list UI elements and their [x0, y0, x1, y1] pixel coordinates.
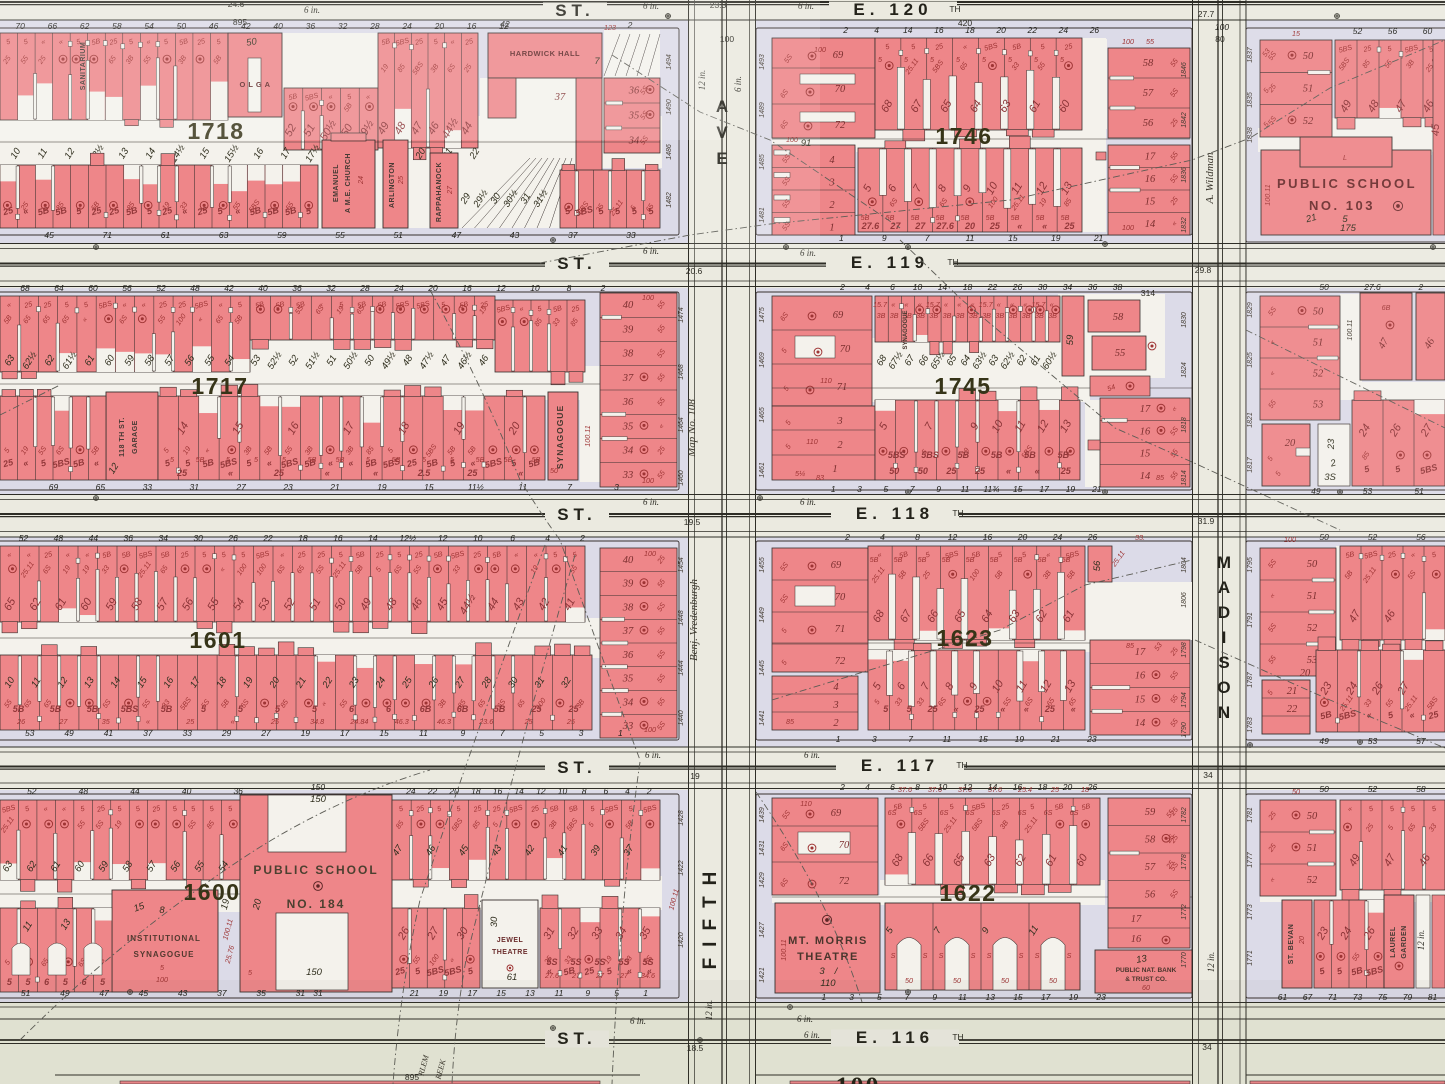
svg-text:1622: 1622	[939, 880, 996, 906]
svg-text:7: 7	[500, 728, 505, 738]
svg-text:SYNAGOGUE: SYNAGOGUE	[133, 950, 194, 959]
svg-text:«: «	[957, 300, 961, 309]
svg-text:5BS: 5BS	[888, 450, 906, 460]
svg-text:11¾: 11¾	[983, 484, 999, 494]
svg-text:1836: 1836	[1181, 167, 1188, 183]
svg-text:12 in.: 12 in.	[1206, 952, 1216, 973]
svg-text:16: 16	[983, 532, 993, 542]
svg-text:58: 58	[1143, 58, 1154, 69]
svg-text:150: 150	[310, 794, 327, 805]
svg-text:72: 72	[835, 656, 846, 667]
svg-text:27: 27	[914, 221, 926, 231]
svg-text:1461: 1461	[759, 462, 766, 478]
svg-text:55: 55	[335, 230, 345, 240]
svg-text:1777: 1777	[1247, 851, 1254, 868]
svg-text:65: 65	[96, 482, 106, 492]
svg-text:34: 34	[1203, 770, 1213, 780]
svg-text:6: 6	[890, 782, 895, 792]
svg-text:52: 52	[19, 533, 29, 543]
svg-text:22: 22	[427, 786, 438, 796]
svg-text:33: 33	[626, 230, 636, 240]
svg-text:«: «	[1050, 300, 1054, 309]
svg-text:40: 40	[182, 786, 192, 796]
svg-text:110: 110	[800, 799, 811, 808]
svg-text:S: S	[1035, 951, 1040, 960]
svg-text:71: 71	[835, 624, 846, 635]
svg-text:6S: 6S	[1044, 808, 1053, 817]
svg-text:33: 33	[143, 482, 153, 492]
svg-text:25: 25	[270, 717, 280, 726]
svg-text:3: 3	[579, 728, 584, 738]
svg-text:72: 72	[839, 876, 850, 887]
svg-text:1846: 1846	[1181, 62, 1188, 78]
svg-text:68: 68	[20, 283, 30, 293]
svg-text:12 in.: 12 in.	[1416, 930, 1426, 951]
svg-text:1772: 1772	[1181, 904, 1188, 920]
svg-text:25: 25	[566, 717, 576, 726]
svg-text:22: 22	[1026, 25, 1037, 35]
svg-text:49: 49	[1319, 736, 1329, 746]
svg-text:15.7: 15.7	[979, 300, 994, 309]
svg-text:25: 25	[1060, 466, 1072, 476]
svg-text:10: 10	[913, 282, 923, 292]
svg-text:25: 25	[973, 704, 985, 714]
svg-text:E. 117: E. 117	[861, 756, 939, 775]
svg-text:«: «	[1017, 221, 1022, 231]
svg-text:16: 16	[333, 533, 343, 543]
svg-text:8: 8	[915, 782, 920, 792]
svg-text:1623: 1623	[936, 625, 993, 651]
svg-text:5B: 5B	[13, 704, 25, 714]
svg-text:5B: 5B	[50, 704, 62, 714]
svg-text:15: 15	[1008, 233, 1018, 243]
svg-text:50: 50	[889, 466, 899, 476]
svg-text:5B: 5B	[1058, 450, 1070, 460]
svg-text:60: 60	[88, 283, 98, 293]
svg-text:4: 4	[545, 533, 550, 543]
svg-text:18: 18	[298, 533, 308, 543]
svg-text:17: 17	[1039, 484, 1049, 494]
svg-text:80: 80	[1215, 34, 1225, 44]
svg-text:«: «	[228, 468, 233, 478]
svg-text:2: 2	[842, 25, 848, 35]
svg-text:6B: 6B	[457, 704, 469, 714]
svg-text:27: 27	[58, 717, 68, 726]
svg-text:85: 85	[1156, 473, 1165, 482]
svg-text:1449: 1449	[759, 607, 766, 623]
svg-text:1746: 1746	[935, 123, 992, 149]
svg-text:35: 35	[622, 674, 634, 685]
svg-text:3: 3	[614, 482, 619, 492]
svg-text:7: 7	[925, 233, 930, 243]
svg-text:11: 11	[961, 484, 970, 494]
svg-text:12½: 12½	[400, 533, 417, 543]
svg-text:40: 40	[623, 555, 634, 566]
svg-text:1429: 1429	[759, 872, 766, 888]
svg-text:PUBLIC SCHOOL: PUBLIC SCHOOL	[253, 863, 378, 877]
svg-text:«: «	[1010, 300, 1014, 309]
svg-text:15.7: 15.7	[926, 300, 941, 309]
svg-text:100: 100	[1122, 223, 1134, 232]
svg-text:I: I	[1222, 628, 1227, 647]
svg-text:INSTITUTIONAL: INSTITUTIONAL	[127, 934, 201, 943]
svg-text:6S: 6S	[940, 808, 949, 817]
svg-text:1601: 1601	[189, 627, 246, 653]
svg-text:55: 55	[1115, 348, 1126, 359]
svg-text:16: 16	[1131, 934, 1142, 945]
svg-text:16: 16	[462, 283, 472, 293]
svg-text:33: 33	[622, 470, 634, 481]
svg-text:69: 69	[833, 50, 844, 61]
svg-text:24.84: 24.84	[349, 717, 368, 726]
svg-text:72: 72	[835, 120, 846, 131]
svg-text:1806: 1806	[1181, 592, 1188, 608]
svg-text:15: 15	[1135, 694, 1146, 705]
svg-text:RAPPAHANOCK: RAPPAHANOCK	[436, 162, 443, 222]
svg-text:1: 1	[832, 464, 837, 475]
svg-text:1468: 1468	[678, 364, 685, 380]
svg-text:27: 27	[445, 185, 454, 195]
svg-text:34: 34	[622, 697, 634, 708]
svg-text:A. Wildman: A. Wildman	[1204, 152, 1216, 205]
svg-text:150: 150	[311, 782, 325, 792]
svg-text:«: «	[891, 300, 895, 309]
svg-text:20: 20	[1300, 668, 1311, 679]
svg-text:1778: 1778	[1181, 854, 1188, 870]
svg-text:110: 110	[820, 376, 831, 385]
svg-text:52: 52	[1307, 623, 1318, 634]
svg-text:«: «	[146, 717, 150, 726]
svg-text:26: 26	[1089, 25, 1100, 35]
svg-text:36: 36	[622, 650, 634, 661]
svg-text:6S: 6S	[888, 808, 897, 817]
svg-text:40: 40	[258, 283, 268, 293]
svg-text:59: 59	[277, 230, 287, 240]
svg-text:5B: 5B	[196, 455, 205, 464]
svg-text:27.6: 27.6	[544, 971, 559, 980]
svg-text:3: 3	[872, 734, 877, 744]
svg-text:LAUREL: LAUREL	[1390, 926, 1397, 958]
svg-text:17: 17	[1135, 647, 1146, 658]
svg-text:NO. 184: NO. 184	[287, 897, 346, 911]
svg-text:61: 61	[161, 230, 171, 240]
svg-text:15.7: 15.7	[873, 300, 888, 309]
svg-text:1804: 1804	[1181, 557, 1188, 573]
svg-text:ARLINGTON: ARLINGTON	[389, 162, 396, 208]
svg-text:71: 71	[837, 382, 848, 393]
svg-text:50: 50	[550, 466, 558, 475]
svg-text:47: 47	[452, 230, 462, 240]
svg-text:36: 36	[124, 533, 134, 543]
svg-text:6B: 6B	[420, 704, 432, 714]
svg-text:69: 69	[831, 560, 842, 571]
svg-text:3B: 3B	[1009, 311, 1018, 320]
svg-text:20: 20	[1062, 782, 1073, 792]
svg-text:5B: 5B	[918, 555, 927, 564]
svg-text:1428: 1428	[678, 810, 685, 826]
svg-text:36: 36	[292, 283, 302, 293]
svg-text:2: 2	[646, 786, 652, 796]
svg-text:«: «	[997, 300, 1001, 309]
svg-text:21: 21	[1091, 484, 1102, 494]
svg-text:100.11: 100.11	[583, 425, 592, 446]
svg-text:27: 27	[571, 971, 581, 980]
svg-text:15: 15	[1013, 484, 1023, 494]
svg-text:26: 26	[1012, 282, 1023, 292]
svg-text:5: 5	[884, 484, 889, 494]
svg-text:48: 48	[190, 283, 200, 293]
svg-text:24: 24	[393, 283, 404, 293]
svg-text:22: 22	[987, 282, 998, 292]
svg-text:1: 1	[839, 233, 844, 243]
svg-text:«: «	[954, 704, 959, 714]
svg-text:56: 56	[122, 283, 132, 293]
svg-text:3B: 3B	[929, 311, 938, 320]
svg-text:19: 19	[690, 771, 700, 781]
svg-text:1482: 1482	[666, 192, 673, 208]
svg-text:7: 7	[567, 482, 572, 492]
svg-text:9: 9	[936, 484, 941, 494]
svg-text:2: 2	[579, 533, 585, 543]
svg-text:14: 14	[1145, 219, 1156, 230]
svg-text:5B: 5B	[1014, 555, 1023, 564]
svg-text:19: 19	[301, 728, 311, 738]
svg-text:7: 7	[908, 734, 913, 744]
svg-text:9: 9	[882, 233, 887, 243]
svg-text:1465: 1465	[759, 407, 766, 423]
svg-text:27.6: 27.6	[935, 221, 955, 231]
svg-text:16: 16	[1013, 782, 1023, 792]
svg-text:5S: 5S	[546, 957, 557, 967]
svg-text:5B: 5B	[494, 704, 506, 714]
svg-text:4: 4	[829, 155, 835, 166]
svg-text:6 in.: 6 in.	[804, 750, 820, 760]
svg-text:100: 100	[1122, 37, 1134, 46]
svg-text:1771: 1771	[1247, 950, 1254, 966]
svg-text:1440: 1440	[678, 710, 685, 726]
svg-text:1794: 1794	[1181, 692, 1188, 708]
svg-text:SYNAGOGUE: SYNAGOGUE	[555, 405, 565, 469]
svg-text:25: 25	[1044, 704, 1056, 714]
svg-text:FIFTH: FIFTH	[700, 861, 721, 970]
svg-text:1469: 1469	[759, 352, 766, 368]
svg-text:4: 4	[865, 782, 870, 792]
svg-text:5S: 5S	[618, 957, 629, 967]
svg-text:5B: 5B	[504, 455, 513, 464]
svg-text:63: 63	[219, 230, 229, 240]
svg-text:14: 14	[368, 533, 378, 543]
svg-text:1842: 1842	[1181, 112, 1188, 128]
svg-text:Benj. Vredenburgh: Benj. Vredenburgh	[688, 578, 700, 661]
svg-text:53: 53	[1368, 736, 1378, 746]
svg-text:32: 32	[326, 283, 336, 293]
svg-text:57: 57	[1143, 88, 1154, 99]
svg-text:1: 1	[618, 728, 623, 738]
svg-text:1460: 1460	[678, 470, 685, 486]
svg-text:48: 48	[54, 533, 64, 543]
svg-text:12: 12	[536, 786, 546, 796]
svg-text:22: 22	[1287, 704, 1298, 715]
svg-text:4: 4	[833, 682, 839, 693]
svg-text:69: 69	[831, 808, 842, 819]
svg-text:51: 51	[1307, 591, 1318, 602]
svg-text:58: 58	[1113, 312, 1124, 323]
svg-text:20: 20	[1017, 532, 1028, 542]
svg-text:3B: 3B	[916, 311, 925, 320]
svg-text:46.3: 46.3	[437, 717, 451, 726]
svg-text:1770: 1770	[1181, 952, 1188, 968]
svg-text:15: 15	[379, 728, 389, 738]
svg-text:70: 70	[840, 344, 851, 355]
svg-text:34: 34	[159, 533, 169, 543]
svg-text:118 TH ST.: 118 TH ST.	[119, 417, 126, 457]
svg-text:1: 1	[829, 223, 834, 234]
svg-text:1: 1	[831, 484, 836, 494]
svg-text:«: «	[1071, 704, 1076, 714]
svg-text:S: S	[923, 951, 928, 960]
svg-text:1782: 1782	[1181, 807, 1188, 823]
svg-text:«: «	[1000, 704, 1005, 714]
svg-text:«: «	[1023, 300, 1027, 309]
svg-text:100: 100	[642, 476, 654, 485]
svg-text:TH: TH	[949, 4, 960, 14]
svg-text:23: 23	[282, 482, 293, 492]
svg-text:10: 10	[938, 782, 948, 792]
svg-text:16: 16	[1135, 671, 1146, 682]
svg-text:25: 25	[396, 175, 405, 185]
svg-text:50: 50	[1292, 787, 1300, 796]
svg-text:27: 27	[889, 221, 901, 231]
svg-text:14: 14	[903, 25, 913, 35]
svg-text:1781: 1781	[1247, 807, 1254, 823]
svg-text:49: 49	[64, 728, 74, 738]
svg-text:3B: 3B	[890, 311, 899, 320]
svg-text:M: M	[1217, 553, 1231, 572]
svg-text:27.6: 27.6	[861, 221, 881, 231]
svg-text:1832: 1832	[1181, 217, 1188, 233]
svg-text:ST.: ST.	[557, 505, 597, 524]
svg-text:48: 48	[79, 786, 89, 796]
svg-text:25: 25	[945, 466, 957, 476]
svg-text:36: 36	[1088, 282, 1098, 292]
svg-text:1783: 1783	[1247, 717, 1254, 733]
svg-text:37: 37	[622, 373, 634, 384]
svg-text:«: «	[918, 300, 922, 309]
svg-text:A: A	[1218, 578, 1230, 597]
svg-text:34: 34	[1063, 282, 1073, 292]
svg-text:6 in.: 6 in.	[643, 497, 659, 507]
svg-text:1474: 1474	[678, 307, 685, 323]
svg-text:25: 25	[927, 704, 939, 714]
svg-text:5B: 5B	[991, 450, 1003, 460]
svg-text:38: 38	[622, 349, 634, 360]
svg-text:ST.: ST.	[557, 758, 597, 777]
svg-text:18: 18	[1038, 782, 1048, 792]
svg-text:37: 37	[622, 626, 634, 637]
svg-text:16: 16	[1145, 174, 1156, 185]
svg-text:20: 20	[1297, 936, 1306, 945]
svg-text:58: 58	[1145, 834, 1156, 845]
svg-text:9: 9	[460, 728, 465, 738]
svg-text:52: 52	[156, 283, 166, 293]
svg-text:35: 35	[622, 421, 634, 432]
svg-text:O: O	[1217, 678, 1230, 697]
svg-text:12: 12	[438, 533, 448, 543]
svg-text:10: 10	[473, 533, 483, 543]
svg-text:36: 36	[233, 786, 243, 796]
svg-text:24: 24	[1052, 532, 1063, 542]
svg-text:5B: 5B	[990, 555, 999, 564]
svg-text:59: 59	[1145, 807, 1156, 818]
svg-text:3: 3	[836, 416, 842, 427]
svg-text:14: 14	[514, 786, 524, 796]
svg-text:20: 20	[448, 786, 459, 796]
svg-text:TH: TH	[947, 257, 958, 267]
svg-text:5BS: 5BS	[121, 704, 139, 714]
svg-text:52: 52	[1307, 875, 1318, 886]
svg-text:«: «	[1006, 466, 1011, 476]
svg-text:1745: 1745	[934, 373, 991, 399]
svg-text:100: 100	[644, 549, 656, 558]
svg-text:6 in.: 6 in.	[800, 497, 816, 507]
svg-text:EMANUEL: EMANUEL	[333, 164, 340, 202]
svg-text:314: 314	[1141, 288, 1155, 298]
svg-text:19.5: 19.5	[684, 517, 701, 527]
svg-text:24: 24	[356, 176, 365, 185]
svg-text:1824: 1824	[1181, 362, 1188, 378]
svg-text:50: 50	[918, 466, 928, 476]
svg-text:30: 30	[489, 916, 500, 927]
svg-text:26: 26	[1087, 782, 1098, 792]
svg-text:8: 8	[582, 786, 587, 796]
svg-text:2: 2	[844, 532, 850, 542]
svg-text:6S: 6S	[1018, 808, 1027, 817]
svg-text:5BS: 5BS	[921, 450, 939, 460]
svg-text:25: 25	[185, 717, 195, 726]
svg-text:S: S	[891, 951, 896, 960]
svg-text:6 in.: 6 in.	[645, 750, 661, 760]
svg-text:85: 85	[786, 717, 795, 726]
svg-text:1444: 1444	[678, 660, 685, 676]
svg-text:3B: 3B	[956, 311, 965, 320]
svg-text:39: 39	[622, 579, 634, 590]
svg-text:1422: 1422	[678, 860, 685, 876]
svg-text:6S: 6S	[992, 808, 1001, 817]
svg-text:6S: 6S	[1070, 808, 1079, 817]
svg-text:2: 2	[600, 283, 606, 293]
svg-text:27: 27	[235, 482, 246, 492]
svg-text:N: N	[1218, 703, 1230, 722]
svg-text:59: 59	[1065, 334, 1076, 345]
svg-text:50: 50	[1307, 811, 1318, 822]
svg-text:4: 4	[865, 282, 870, 292]
svg-text:4: 4	[874, 25, 879, 35]
svg-text:57: 57	[1416, 736, 1426, 746]
svg-text:21: 21	[1287, 686, 1298, 697]
svg-text:5B: 5B	[966, 555, 975, 564]
svg-text:6S: 6S	[966, 808, 975, 817]
svg-text:THEATRE: THEATRE	[797, 951, 859, 963]
svg-text:22: 22	[262, 533, 273, 543]
svg-text:29.8: 29.8	[1195, 265, 1212, 275]
svg-text:2: 2	[829, 200, 835, 211]
svg-text:17: 17	[1140, 404, 1151, 415]
svg-text:2: 2	[839, 282, 845, 292]
svg-text:E. 119: E. 119	[851, 253, 929, 272]
svg-text:5B: 5B	[476, 455, 485, 464]
svg-text:E. 118: E. 118	[856, 504, 934, 523]
svg-text:1448: 1448	[678, 610, 685, 626]
